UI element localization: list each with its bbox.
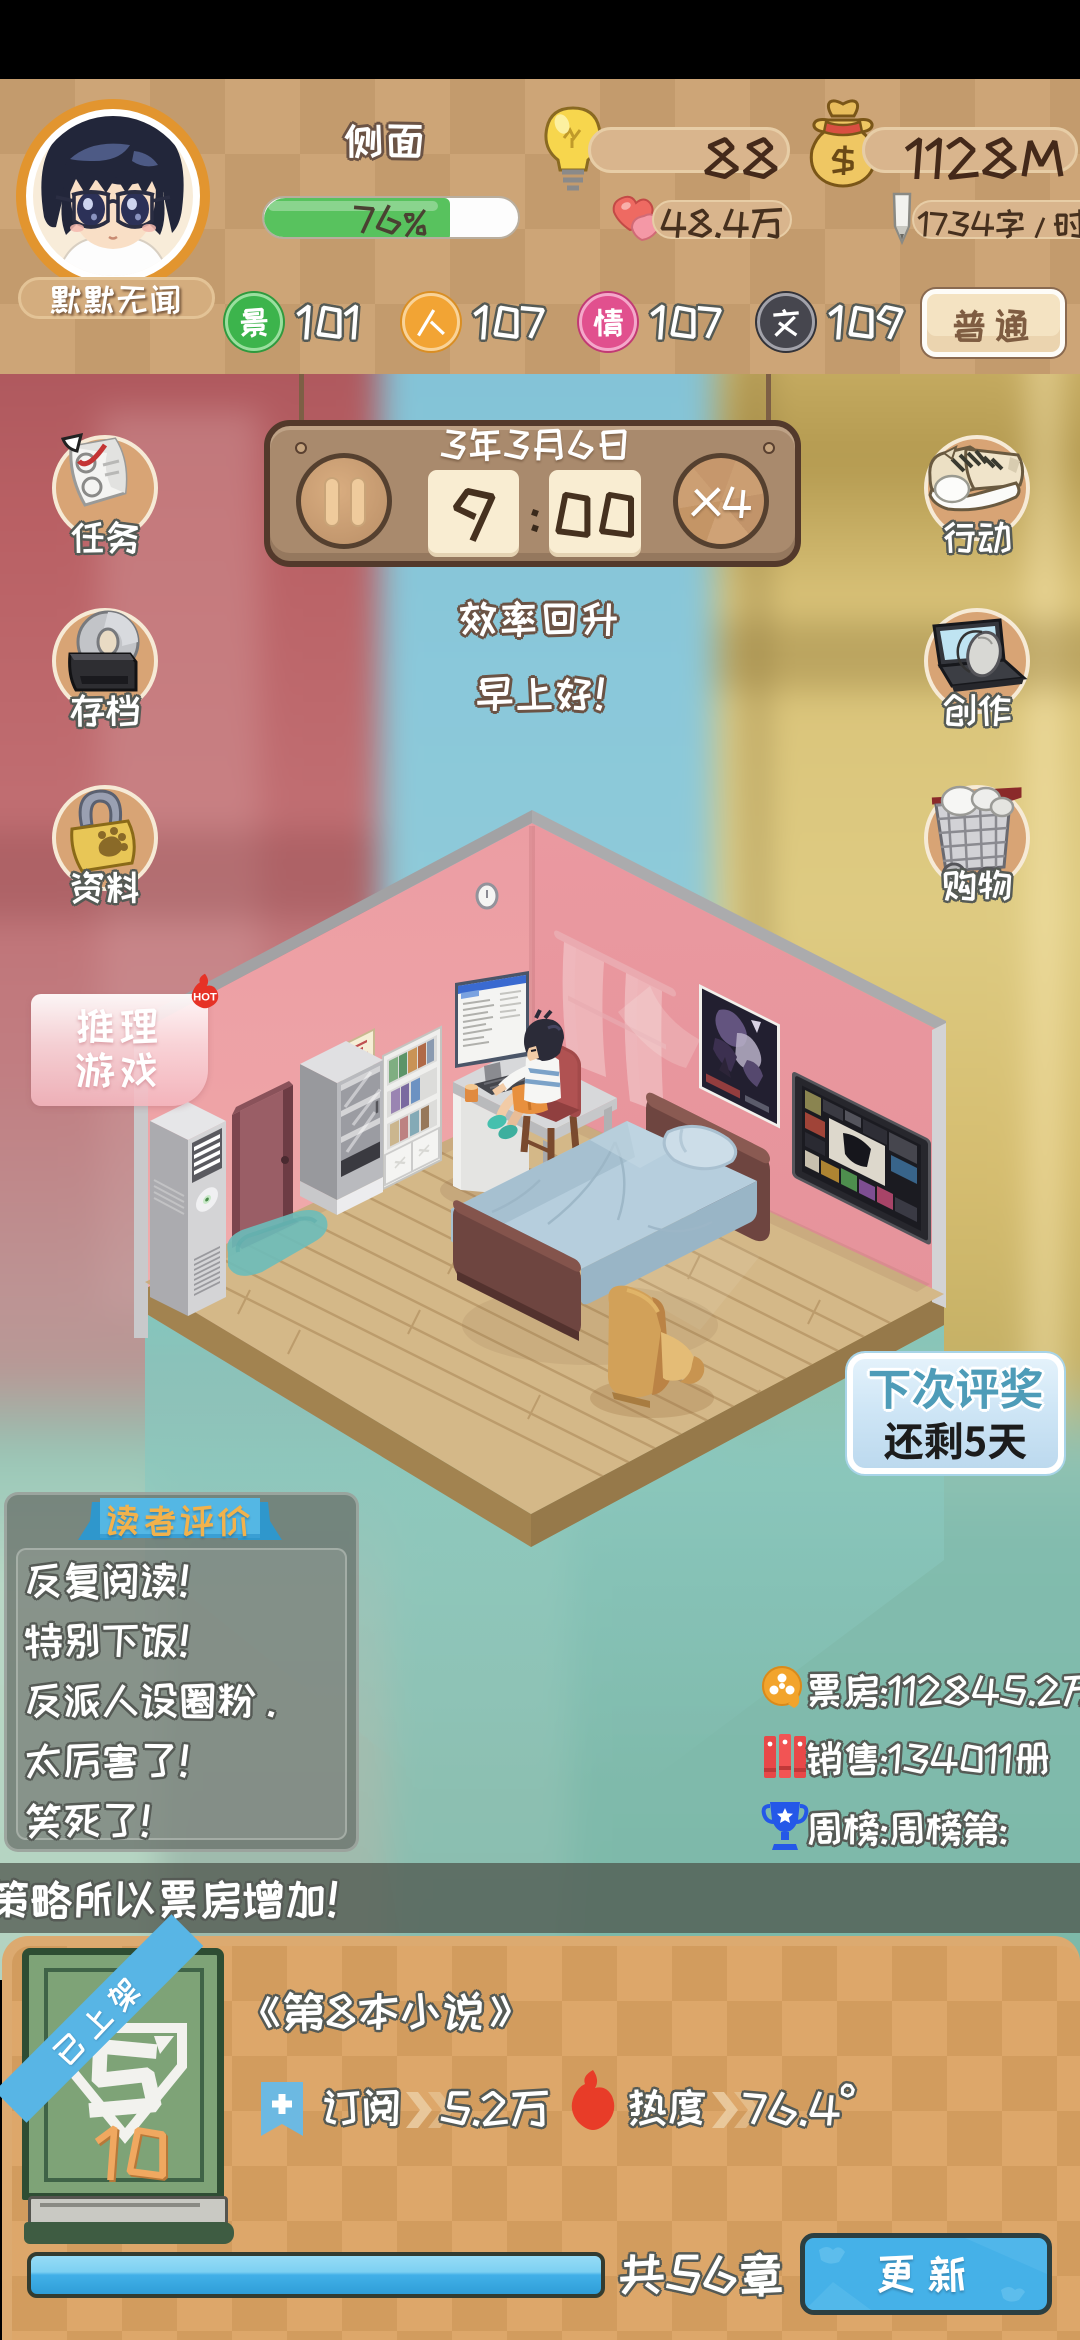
svg-text:$: $ (831, 132, 855, 176)
svg-text:HOT: HOT (193, 992, 217, 1004)
